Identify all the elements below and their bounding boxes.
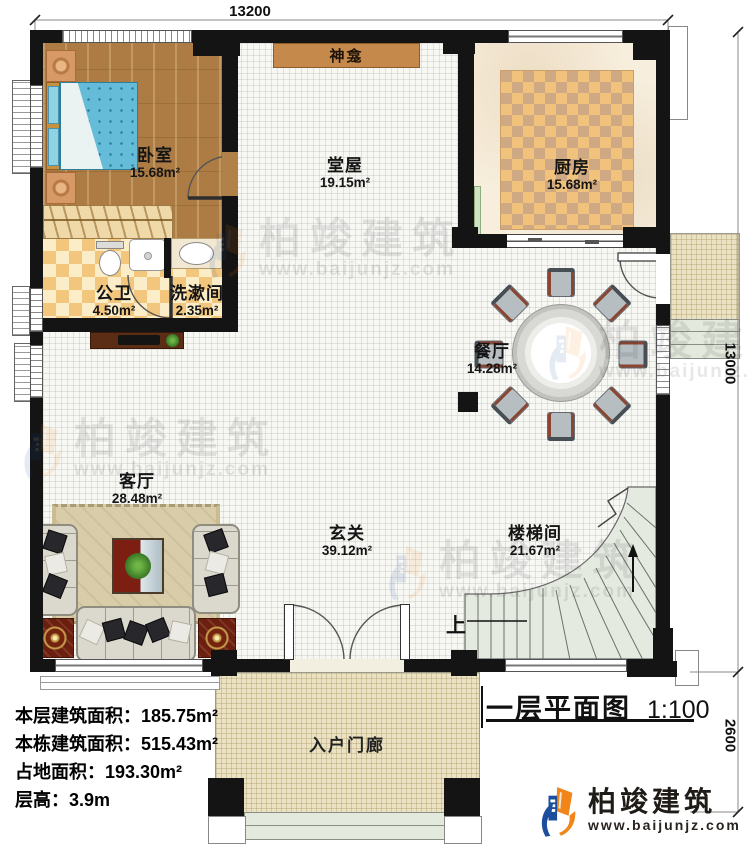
right-flue-box xyxy=(668,26,688,120)
coffee-table-plant xyxy=(125,553,151,579)
room-label-entry-porch: 入户门廊 xyxy=(287,731,407,756)
porch-column-base xyxy=(444,816,482,844)
entry-door-opening xyxy=(290,659,404,672)
sliding-door-handle xyxy=(528,238,542,242)
porch-column xyxy=(211,650,237,676)
wall-bath-divider xyxy=(164,238,171,278)
stair-up-label: 上 xyxy=(446,609,466,638)
floor-plan-canvas: 神龛 xyxy=(0,0,750,857)
cushion xyxy=(44,552,68,576)
dimension-porch-height: 2600 xyxy=(722,706,739,766)
cushion xyxy=(205,551,229,575)
tv xyxy=(118,335,160,345)
porch-column-base xyxy=(208,816,246,844)
nightstand xyxy=(46,50,76,82)
sofa-bottom xyxy=(76,606,196,662)
bedroom-bay-window xyxy=(12,80,32,174)
pillow xyxy=(48,128,59,166)
brand-logo-block: 柏竣建筑 www.baijunjz.com xyxy=(538,783,741,837)
structural-column xyxy=(458,392,478,412)
room-label-bedroom: 卧室 15.68m² xyxy=(100,146,210,180)
bath-bay-window xyxy=(12,286,30,336)
info-line: 层高：3.9m xyxy=(15,786,218,814)
wall-kitchen-west xyxy=(458,30,474,248)
washbasin xyxy=(179,242,214,265)
dining-chair xyxy=(619,341,648,369)
dining-chair xyxy=(547,268,575,297)
dimension-right-height: 13000 xyxy=(722,334,739,394)
sliding-door-handle xyxy=(585,240,599,244)
window-bedroom-west xyxy=(30,85,43,168)
title-block-divider xyxy=(481,686,483,728)
pier xyxy=(623,227,656,248)
sofa-right xyxy=(192,524,240,614)
pillow xyxy=(48,86,59,124)
bedroom-door-opening xyxy=(222,152,238,196)
porch-column xyxy=(451,650,477,676)
kitchen-sliding-door xyxy=(507,234,623,248)
brand-logo-icon xyxy=(538,783,580,837)
cushion xyxy=(168,620,192,644)
room-label-stairwell: 楼梯间 21.67m² xyxy=(482,524,588,558)
room-label-foyer: 玄关 39.12m² xyxy=(300,524,394,558)
brand-website: www.baijunjz.com xyxy=(588,817,741,833)
window-bedroom-north xyxy=(62,30,192,43)
title-underline xyxy=(486,719,694,722)
room-label-public-bath: 公卫 4.50m² xyxy=(70,284,158,318)
entry-door-leaf xyxy=(400,604,410,660)
entry-door-leaf xyxy=(284,604,294,660)
info-line: 本层建筑面积：185.75m² xyxy=(15,702,218,730)
wardrobe xyxy=(43,205,173,239)
cushion xyxy=(203,528,229,554)
porch-column xyxy=(444,778,480,816)
room-label-washroom: 洗漱间 2.35m² xyxy=(152,284,242,318)
pier-corner-se xyxy=(627,661,677,677)
pier xyxy=(452,227,478,248)
shrine-shelf: 神龛 xyxy=(273,43,420,68)
cushion xyxy=(42,529,67,554)
room-label-dining: 餐厅 14.28m² xyxy=(445,342,539,376)
brand-name: 柏竣建筑 xyxy=(588,787,741,817)
area-info-panel: 本层建筑面积：185.75m² 本栋建筑面积：515.43m² 占地面积：193… xyxy=(15,702,218,814)
side-door-opening xyxy=(656,254,670,304)
dining-chair xyxy=(547,412,575,441)
plant xyxy=(166,334,179,347)
room-label-main-hall: 堂屋 19.15m² xyxy=(293,156,397,190)
pier xyxy=(633,30,670,60)
window-kitchen-north xyxy=(508,30,623,43)
toilet-bowl xyxy=(99,250,121,276)
window-living-south xyxy=(55,659,203,672)
cushion xyxy=(42,573,68,599)
room-label-kitchen: 厨房 15.68m² xyxy=(520,158,624,192)
side-porch-floor xyxy=(670,233,740,321)
entry-porch-steps xyxy=(244,812,446,840)
corner-pier-box xyxy=(675,650,699,686)
toilet-tank xyxy=(96,241,124,249)
wall-bedroom-east-lower xyxy=(222,196,238,240)
wall-bath-south xyxy=(30,318,238,332)
info-line: 占地面积：193.30m² xyxy=(15,758,218,786)
window-stair-south xyxy=(505,659,627,672)
window-hall-west xyxy=(30,345,43,398)
dimension-top-width: 13200 xyxy=(215,3,285,20)
pier xyxy=(193,30,240,56)
shower-drain xyxy=(144,252,152,260)
window-dining-east xyxy=(656,325,670,395)
shrine-label: 神龛 xyxy=(329,45,363,66)
kitchen-rug xyxy=(500,70,634,230)
room-label-living: 客厅 28.48m² xyxy=(85,472,189,506)
pier xyxy=(443,30,475,54)
info-line: 本栋建筑面积：515.43m² xyxy=(15,730,218,758)
nightstand xyxy=(46,172,76,204)
window-bath-west xyxy=(30,288,43,332)
living-window-sill xyxy=(40,676,220,690)
cushion xyxy=(204,573,228,597)
